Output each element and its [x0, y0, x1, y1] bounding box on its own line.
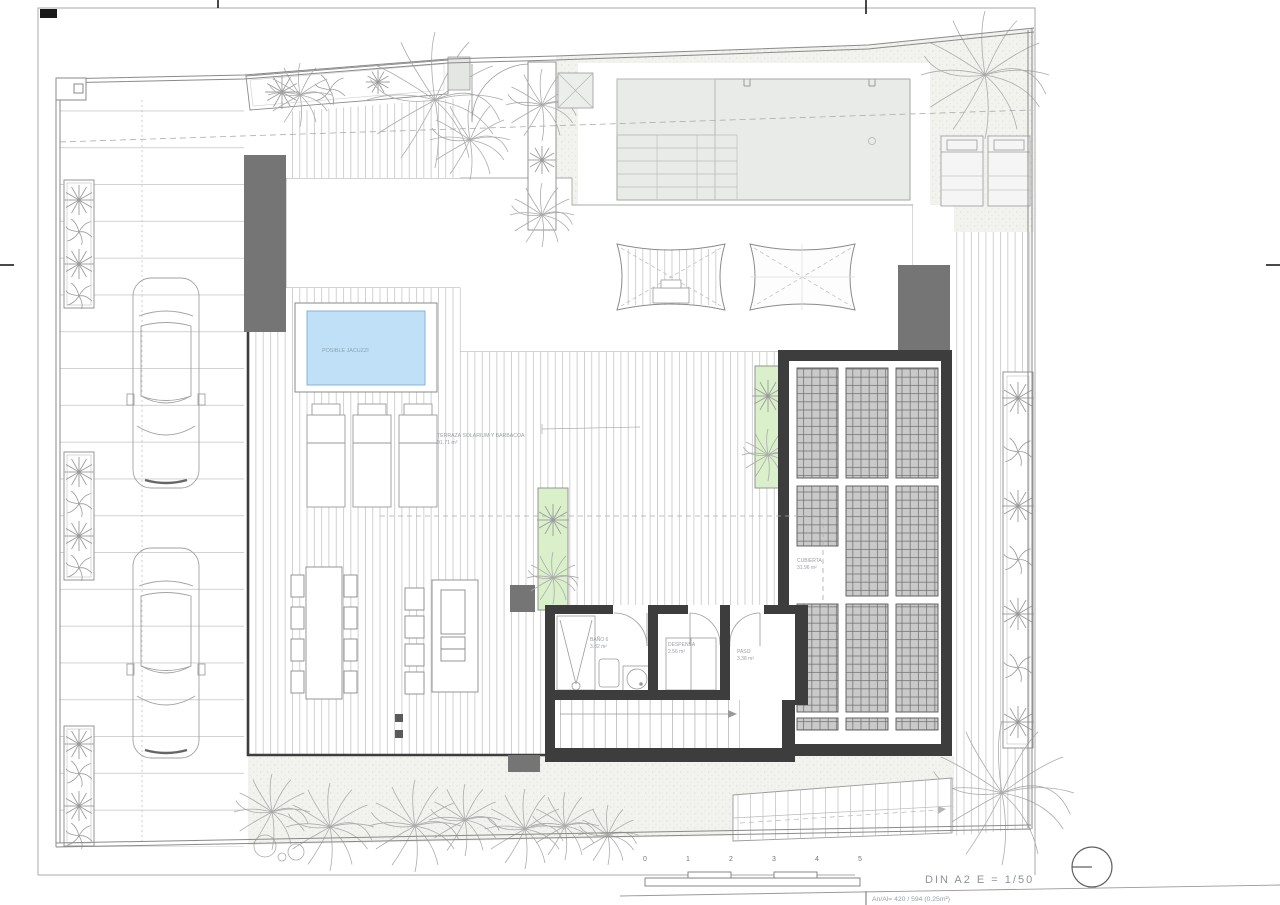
scale-tick-label: 4	[815, 856, 819, 863]
floor-plan-drawing: POSIBLE JACUZZI TERRAZA SOLARIUM Y BARBA…	[0, 0, 1280, 905]
deck-step-wall	[508, 755, 540, 772]
wall-block	[898, 265, 950, 350]
kitchen-island	[405, 580, 478, 694]
sheet-size-label: An/Al= 420 / 594 (0.25m²)	[872, 896, 950, 903]
deck-light	[395, 730, 403, 738]
hall-label: PASO	[737, 649, 751, 655]
barbecue-wall	[510, 585, 535, 612]
deck-light	[395, 714, 403, 722]
sun-lounger	[399, 404, 437, 507]
roof-label: CUBIERTA	[797, 558, 822, 564]
scale-tick-label: 3	[772, 856, 776, 863]
floor-plan-sheet: POSIBLE JACUZZI TERRAZA SOLARIUM Y BARBA…	[0, 0, 1280, 905]
sun-lounger	[307, 404, 345, 507]
scale-tick-label: 5	[858, 856, 862, 863]
sun-lounger	[941, 136, 983, 206]
scale-tick-label: 1	[686, 856, 690, 863]
pantry-label: DESPENSA	[668, 642, 696, 648]
terrace-loungers	[307, 404, 437, 507]
rooms-block: BAÑO 6 3.82 m² DESPENSA 2.56 m² PASO 3.3…	[545, 605, 808, 762]
planter-box	[64, 726, 94, 849]
roof-panels-room: CUBIERTA 31.96 m²	[789, 361, 941, 745]
stairs	[556, 700, 740, 748]
svg-text:91.71 m²: 91.71 m²	[437, 440, 458, 446]
bathroom-label: BAÑO 6	[590, 636, 609, 643]
hall-area-label: 3.38 m²	[737, 656, 754, 662]
jacuzzi: POSIBLE JACUZZI	[295, 303, 437, 392]
sun-lounger	[988, 136, 1030, 206]
pantry-area-label: 2.56 m²	[668, 649, 685, 655]
stair-landing	[740, 700, 782, 748]
shade-sail	[750, 244, 855, 310]
svg-text:TERRAZA SOLARIUM Y BARBACOA: TERRAZA SOLARIUM Y BARBACOA	[437, 433, 525, 439]
jacuzzi-label: POSIBLE JACUZZI	[322, 348, 369, 354]
planter-box	[64, 180, 94, 309]
sun-lounger	[353, 404, 391, 507]
side-planter	[1002, 372, 1034, 748]
scale-tick-label: 0	[643, 856, 647, 863]
parking-area	[60, 100, 244, 849]
bathroom-area-label: 3.82 m²	[590, 644, 607, 650]
outdoor-shower	[558, 73, 593, 108]
scale-tick-label: 2	[729, 856, 733, 863]
wall-block	[244, 155, 286, 332]
roof-area-label: 31.96 m²	[797, 565, 817, 571]
shade-sail	[617, 244, 725, 310]
gate-post-cap	[74, 84, 83, 93]
planter-box	[64, 452, 94, 581]
swimming-pool	[578, 63, 930, 216]
sheet-format-label: DIN A2 E = 1/50	[925, 874, 1034, 886]
